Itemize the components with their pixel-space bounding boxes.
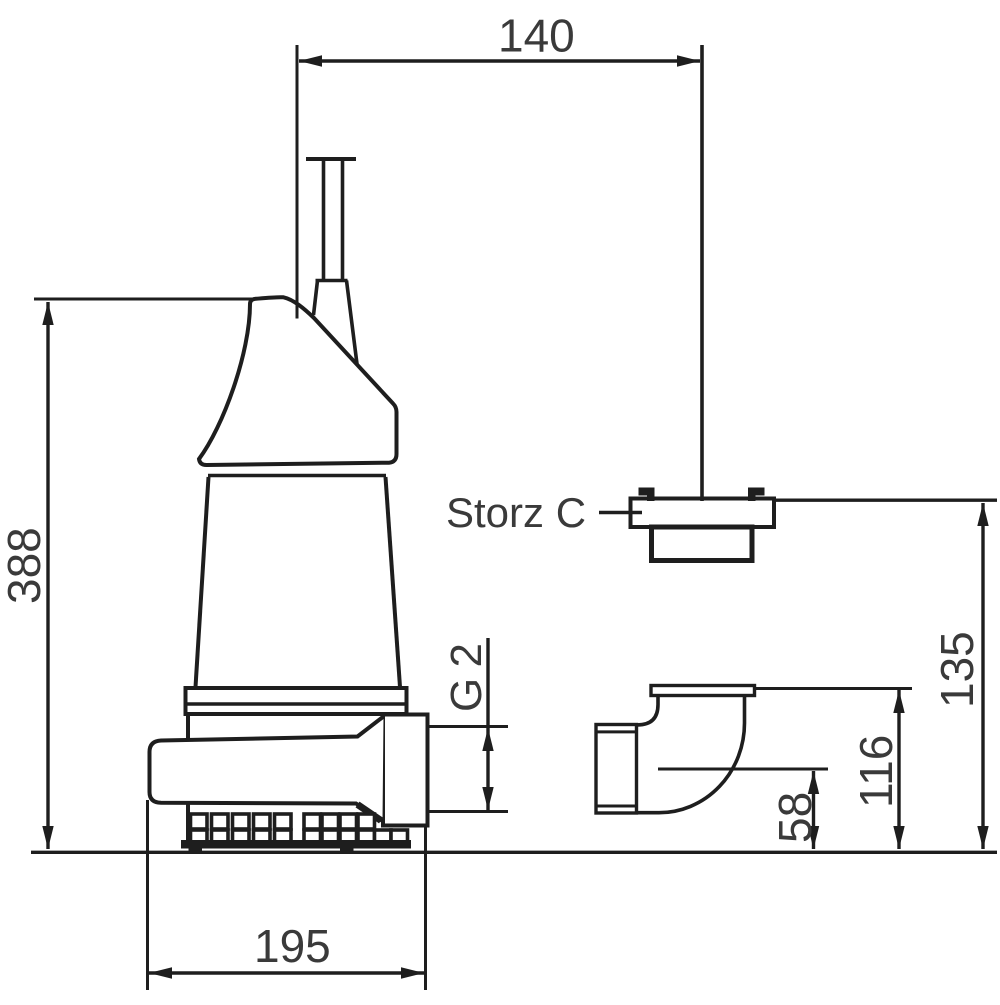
svg-text:58: 58: [769, 792, 821, 843]
svg-text:135: 135: [931, 631, 983, 708]
svg-text:116: 116: [850, 735, 902, 808]
svg-text:388: 388: [0, 527, 50, 604]
svg-text:Storz C: Storz C: [446, 489, 586, 536]
svg-text:195: 195: [254, 920, 331, 972]
svg-text:G 2: G 2: [442, 644, 491, 712]
svg-text:140: 140: [498, 10, 575, 62]
